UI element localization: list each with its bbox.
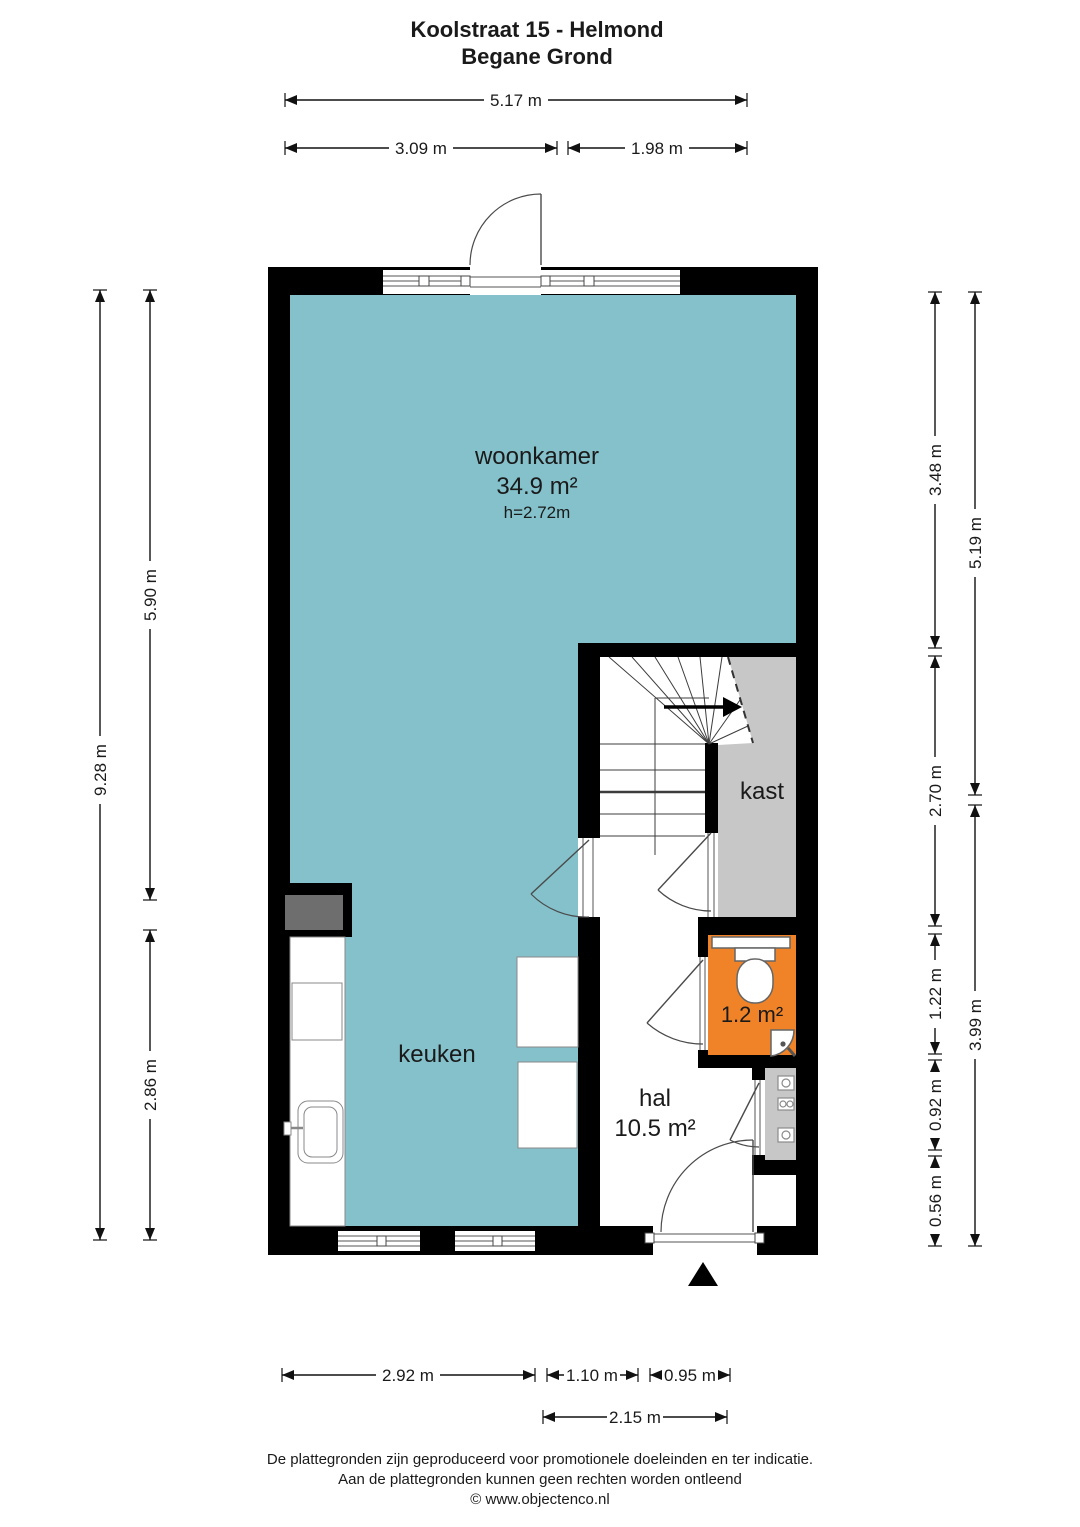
entrance-marker-icon (688, 1262, 718, 1286)
door-front-entrance (645, 1140, 764, 1255)
svg-text:5.90 m: 5.90 m (141, 569, 160, 621)
wall-stair-top (578, 643, 796, 657)
label-kast: kast (740, 778, 784, 805)
kitchen-unit-upper (517, 957, 578, 1047)
title-line1: Koolstraat 15 - Helmond (410, 17, 663, 42)
window-mullion (377, 1236, 386, 1246)
svg-text:2.92 m: 2.92 m (382, 1366, 434, 1385)
dim-right-outer-upper: 5.19 m (966, 292, 985, 795)
dimension-lines-left: 9.28 m 5.90 m 2.86 m (91, 290, 160, 1240)
dim-top-right: 1.98 m (568, 139, 747, 158)
wall-meter-bottom (752, 1160, 818, 1175)
svg-text:0.92 m: 0.92 m (926, 1079, 945, 1131)
footer-disclaimer: De plattegronden zijn geproduceerd voor … (267, 1451, 813, 1508)
window-mullion (584, 276, 594, 286)
dim-right-seg5: 0.56 m (926, 1156, 945, 1246)
toilet-shelf (712, 937, 790, 948)
svg-text:2.86 m: 2.86 m (141, 1059, 160, 1111)
svg-text:3.48 m: 3.48 m (926, 444, 945, 496)
window-mullion (493, 1236, 502, 1246)
dim-top-total: 5.17 m (285, 91, 747, 110)
toilet-icon (735, 948, 775, 1003)
dim-top-left: 3.09 m (285, 139, 557, 158)
wall-right (796, 267, 818, 1255)
dimension-lines-top: 5.17 m 3.09 m 1.98 m (285, 91, 747, 158)
title-line2: Begane Grond (461, 44, 613, 69)
dim-left-lower: 2.86 m (141, 930, 160, 1240)
door-meter-closet (730, 1080, 765, 1155)
kitchen-unit-lower (518, 1062, 577, 1148)
label-hal: hal (639, 1085, 671, 1112)
svg-text:1.10 m: 1.10 m (566, 1366, 618, 1385)
label-woonkamer: woonkamer (474, 443, 599, 470)
window-bottom-left (338, 1231, 420, 1251)
svg-text:1.98 m: 1.98 m (631, 139, 683, 158)
meter-closet-symbols (778, 1076, 794, 1142)
dimension-lines-right-outer: 5.19 m 3.99 m (966, 292, 985, 1246)
label-toilet-area: 1.2 m² (721, 1002, 783, 1027)
dim-right-seg2: 2.70 m (926, 656, 945, 926)
wall-hal-keuken (578, 643, 600, 1226)
svg-text:0.56 m: 0.56 m (926, 1175, 945, 1227)
wall-toilet-bottom (698, 1055, 818, 1068)
dim-bottom-hal-total: 2.15 m (543, 1408, 727, 1427)
wall-left (268, 267, 290, 1255)
dim-right-seg3: 1.22 m (926, 934, 945, 1054)
svg-text:3.09 m: 3.09 m (395, 139, 447, 158)
floorplan-page: Koolstraat 15 - Helmond Begane Grond (0, 0, 1080, 1527)
dim-left-upper: 5.90 m (141, 290, 160, 900)
svg-text:1.22 m: 1.22 m (926, 968, 945, 1020)
svg-text:0.95 m: 0.95 m (664, 1366, 716, 1385)
dimension-lines-bottom: 2.92 m 1.10 m 0.95 m 2.15 m (282, 1366, 730, 1427)
svg-text:2.15 m: 2.15 m (609, 1408, 661, 1427)
svg-text:9.28 m: 9.28 m (91, 744, 110, 796)
wall-kast-bottom (698, 917, 796, 935)
svg-text:5.17 m: 5.17 m (490, 91, 542, 110)
dim-right-seg4: 0.92 m (926, 1060, 945, 1150)
footer-line2: Aan de plattegronden kunnen geen rechten… (338, 1471, 742, 1488)
label-woonkamer-height: h=2.72m (504, 503, 571, 522)
label-hal-area: 10.5 m² (614, 1115, 695, 1142)
dim-bottom-seg3: 0.95 m (650, 1366, 730, 1385)
dimension-lines-right-inner: 3.48 m 2.70 m 1.22 m 0.92 m (926, 292, 945, 1246)
label-keuken: keuken (398, 1041, 475, 1068)
svg-text:5.19 m: 5.19 m (966, 517, 985, 569)
dim-right-outer-lower: 3.99 m (966, 805, 985, 1246)
duct-inset (285, 895, 343, 930)
window-mullion (419, 276, 429, 286)
svg-text:2.70 m: 2.70 m (926, 765, 945, 817)
dim-bottom-seg2: 1.10 m (547, 1366, 638, 1385)
corner-sink-icon (771, 1030, 795, 1056)
dim-bottom-seg1: 2.92 m (282, 1366, 535, 1385)
kitchen-counter (290, 937, 345, 1226)
label-woonkamer-area: 34.9 m² (496, 473, 577, 500)
dim-left-total: 9.28 m (91, 290, 110, 1240)
footer-line1: De plattegronden zijn geproduceerd voor … (267, 1451, 813, 1468)
svg-text:3.99 m: 3.99 m (966, 999, 985, 1051)
dim-right-seg1: 3.48 m (926, 292, 945, 648)
floorplan-canvas: Koolstraat 15 - Helmond Begane Grond (0, 0, 1080, 1527)
kitchen-appliance (292, 983, 342, 1040)
window-bottom-right (455, 1231, 535, 1251)
door-toilet (647, 957, 708, 1050)
footer-line3: © www.objectenco.nl (470, 1491, 609, 1508)
door-garden (461, 194, 550, 295)
page-title: Koolstraat 15 - Helmond Begane Grond (410, 17, 663, 69)
